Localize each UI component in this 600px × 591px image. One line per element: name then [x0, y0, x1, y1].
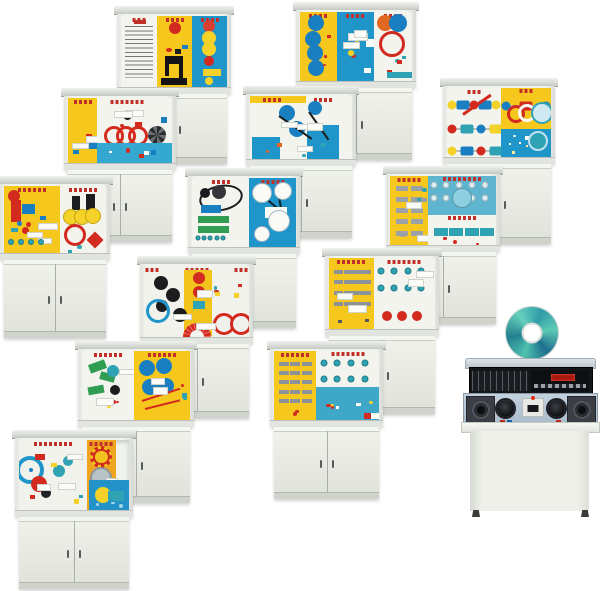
display-case — [188, 168, 300, 254]
door-handle — [332, 460, 334, 468]
backboard-panel — [121, 16, 157, 88]
red-caption-mark — [341, 352, 344, 356]
red-caption-mark — [408, 260, 411, 264]
red-caption-mark — [268, 98, 271, 102]
shaft-part — [477, 124, 486, 133]
display-case — [246, 86, 356, 166]
backboard-panel — [316, 387, 379, 421]
red-caption-marks — [74, 100, 92, 104]
scattered-part — [400, 234, 405, 237]
display-case — [386, 166, 500, 252]
display-backboard — [82, 351, 190, 421]
label-strip — [58, 483, 76, 490]
scattered-part — [116, 401, 120, 404]
backboard-panel — [501, 88, 551, 129]
card-slot — [528, 405, 539, 412]
speaker-cone-icon — [472, 401, 490, 419]
cabinet-base — [4, 331, 106, 338]
backboard-panel — [329, 258, 374, 330]
backboard-panel — [447, 88, 501, 158]
case-body — [0, 184, 110, 260]
scattered-part — [338, 320, 342, 323]
label-strip — [337, 293, 353, 300]
case-sill — [443, 157, 555, 164]
red-caption-mark — [64, 442, 67, 446]
red-caption-mark — [34, 442, 37, 446]
red-caption-marks — [94, 353, 122, 357]
red-caption-mark — [89, 100, 92, 104]
model-part-block — [193, 301, 205, 309]
model-part-disc — [212, 185, 226, 199]
door-handle — [141, 462, 143, 470]
model-part-disc — [254, 226, 270, 242]
parts-grid-item — [217, 226, 229, 233]
red-caption-mark — [121, 100, 124, 104]
scattered-part — [51, 463, 57, 467]
scattered-part — [509, 143, 511, 145]
scattered-part — [182, 45, 188, 49]
red-caption-mark — [398, 178, 401, 182]
model-part-block — [87, 231, 104, 248]
red-caption-marks — [34, 442, 72, 446]
belt-line — [145, 400, 180, 411]
scattered-part — [234, 293, 239, 298]
cabinet-base — [19, 582, 129, 589]
red-caption-mark — [448, 177, 451, 181]
red-caption-mark — [356, 352, 359, 356]
model-part-disc — [154, 276, 168, 290]
gear-wheel-hub — [93, 449, 109, 465]
red-caption-mark — [296, 353, 299, 357]
label-strip — [196, 323, 216, 331]
red-caption-mark — [151, 268, 154, 272]
gear-wheel-model — [90, 446, 112, 468]
red-caption-mark — [168, 353, 171, 357]
scattered-part — [526, 145, 528, 147]
parts-grid-item — [443, 181, 450, 188]
model-part-block — [22, 204, 35, 214]
label-strip — [153, 387, 167, 395]
parts-grid-item — [348, 375, 355, 382]
center-module — [522, 398, 544, 417]
red-caption-marks — [146, 268, 159, 272]
parts-grid-item — [396, 186, 408, 191]
scattered-part — [238, 284, 242, 287]
backboard-panel — [97, 143, 172, 164]
red-caption-mark — [329, 98, 332, 102]
red-caption-mark — [346, 14, 349, 18]
parts-grid-item — [353, 291, 362, 295]
label-strip — [173, 314, 192, 320]
model-part-disc — [274, 182, 292, 200]
backboard-panel — [501, 129, 551, 158]
parts-grid-item — [443, 194, 450, 201]
scattered-part — [139, 154, 143, 158]
model-part-disc — [382, 311, 392, 321]
red-caption-mark — [403, 178, 406, 182]
red-caption-mark — [23, 188, 26, 192]
display-case — [64, 88, 176, 170]
parts-grid-item — [362, 360, 369, 367]
label-strip — [151, 378, 165, 384]
parts-grid-item — [430, 181, 437, 188]
scattered-part — [519, 142, 521, 143]
red-caption-mark — [38, 188, 41, 192]
parts-grid-item — [344, 270, 353, 274]
door-handle — [361, 121, 363, 129]
model-part-disc — [389, 14, 407, 32]
red-caption-mark — [104, 353, 107, 357]
backboard-panel — [144, 266, 249, 338]
display-backboard — [68, 98, 172, 164]
display-cabinet-unit — [270, 341, 383, 499]
red-caption-mark — [39, 442, 42, 446]
model-part-disc — [166, 288, 180, 302]
red-caption-mark — [525, 89, 528, 93]
red-caption-mark — [54, 442, 57, 446]
case-body — [15, 438, 133, 517]
parts-grid-item — [391, 267, 398, 274]
door-handle — [79, 550, 81, 558]
label-strip — [343, 42, 360, 49]
red-caption-mark — [351, 352, 354, 356]
red-caption-mark — [119, 353, 122, 357]
scattered-part — [74, 499, 79, 504]
label-strip — [114, 111, 134, 118]
red-caption-mark — [336, 352, 339, 356]
backboard-panel — [192, 16, 227, 88]
parts-grid-item — [434, 228, 448, 236]
label-strip — [354, 30, 368, 38]
scattered-part — [109, 151, 112, 153]
red-caption-mark — [458, 216, 461, 220]
model-part-block — [371, 413, 379, 419]
case-body — [117, 14, 231, 94]
parts-grid-item — [302, 371, 312, 375]
sliding-door-seam — [74, 521, 75, 583]
display-backboard — [390, 176, 496, 246]
sliding-door-seam — [55, 264, 56, 332]
speaker-left — [466, 396, 495, 424]
sliding-door-seam — [136, 431, 137, 497]
case-sill — [78, 420, 194, 427]
cabinet-base — [274, 492, 379, 499]
model-part-disc — [230, 313, 249, 335]
parts-grid-item — [302, 380, 312, 384]
sliding-door-seam — [443, 256, 444, 318]
parts-grid-item — [404, 267, 411, 274]
scattered-part — [443, 237, 446, 239]
red-caption-mark — [244, 268, 247, 272]
display-cabinet-unit — [0, 176, 110, 338]
label-strip — [408, 279, 423, 287]
scattered-part — [166, 48, 172, 52]
door-handle — [113, 203, 115, 211]
label-strip — [281, 122, 299, 128]
backboard-panel — [316, 351, 379, 387]
red-caption-marks — [448, 216, 476, 220]
red-caption-marks — [443, 177, 481, 181]
label-strip — [307, 123, 323, 131]
case-body — [270, 349, 383, 427]
red-caption-marks — [212, 180, 230, 184]
model-part-disc — [107, 365, 119, 377]
red-caption-mark — [468, 90, 471, 94]
parts-grid-item — [377, 267, 384, 274]
label-strip — [406, 202, 421, 209]
model-part-disc — [139, 360, 155, 376]
label-strip — [297, 146, 313, 152]
scattered-part — [295, 410, 299, 413]
model-part-disc — [308, 60, 324, 76]
parts-grid-item — [411, 186, 423, 191]
parts-grid-item — [18, 239, 24, 245]
model-part-disc — [528, 131, 548, 151]
door-handle — [125, 203, 127, 211]
case-body — [64, 96, 176, 170]
red-caption-marks — [346, 14, 364, 18]
backboard-panel — [157, 16, 192, 88]
scattered-part — [356, 403, 361, 406]
scattered-part — [321, 143, 325, 147]
red-caption-mark — [116, 100, 119, 104]
parts-grid-item — [480, 228, 494, 236]
shaft-assembly-model — [449, 122, 499, 136]
shaft-part — [448, 100, 457, 109]
red-caption-mark — [530, 89, 533, 93]
display-cabinet-unit — [15, 430, 133, 589]
red-caption-mark — [342, 260, 345, 264]
model-part-disc — [268, 210, 290, 232]
backboard-panel — [374, 258, 435, 330]
red-caption-mark — [361, 14, 364, 18]
scattered-part — [29, 468, 33, 472]
door-handle — [504, 201, 506, 209]
red-caption-mark — [84, 188, 87, 192]
deck-display-window — [551, 374, 575, 381]
red-caption-mark — [173, 353, 176, 357]
model-part-disc — [531, 102, 551, 124]
case-body — [188, 176, 300, 254]
console-body — [470, 431, 589, 511]
red-caption-mark — [74, 100, 77, 104]
red-caption-mark — [362, 260, 365, 264]
case-sill — [0, 253, 110, 260]
display-case — [325, 248, 439, 336]
parts-grid-item — [290, 399, 300, 403]
scattered-part — [302, 154, 306, 157]
model-part-block — [252, 137, 280, 160]
parts-grid-item — [348, 360, 355, 367]
red-caption-mark — [388, 260, 391, 264]
label-strip — [197, 290, 213, 298]
backboard-panel — [249, 178, 296, 248]
scattered-part — [402, 56, 406, 59]
model-part-block — [201, 205, 221, 213]
case-sill — [270, 420, 383, 427]
model-part-block — [88, 385, 105, 396]
parts-grid-item — [391, 285, 398, 292]
red-caption-mark — [79, 188, 82, 192]
display-backboard — [144, 266, 249, 338]
scattered-part — [364, 68, 371, 73]
parts-grid-item — [334, 280, 343, 284]
red-caption-mark — [306, 353, 309, 357]
model-part-disc — [252, 183, 272, 203]
model-part-disc — [452, 188, 472, 208]
red-caption-mark — [281, 353, 284, 357]
speaker-right — [567, 396, 596, 424]
case-body — [325, 256, 439, 336]
red-caption-mark — [291, 353, 294, 357]
red-caption-marks — [468, 90, 481, 94]
red-caption-mark — [99, 353, 102, 357]
red-caption-marks — [69, 188, 97, 192]
scattered-part — [421, 198, 427, 202]
red-caption-mark — [463, 177, 466, 181]
red-caption-mark — [69, 188, 72, 192]
case-sill — [188, 247, 300, 254]
display-backboard — [250, 96, 352, 160]
case-body — [296, 10, 416, 88]
door-handle — [67, 550, 69, 558]
scattered-part — [331, 406, 334, 409]
display-case — [296, 2, 416, 88]
scattered-part — [88, 143, 96, 149]
scattered-part — [181, 384, 185, 388]
red-caption-marks — [281, 353, 309, 357]
label-strip — [38, 223, 58, 230]
model-part-disc — [8, 190, 20, 202]
cassette-deck — [531, 370, 589, 392]
backboard-panel — [60, 186, 106, 254]
backboard-panel — [192, 178, 249, 248]
parts-grid-item — [279, 380, 289, 384]
red-caption-mark — [478, 177, 481, 181]
display-backboard — [121, 16, 227, 88]
console-av-panel — [469, 367, 593, 395]
red-caption-mark — [28, 188, 31, 192]
red-caption-mark — [403, 260, 406, 264]
red-caption-mark — [146, 268, 149, 272]
red-caption-mark — [408, 178, 411, 182]
shaft-part — [460, 124, 473, 133]
scattered-part — [126, 148, 131, 153]
cd-center-hole — [524, 325, 541, 342]
model-part-ring — [64, 224, 86, 246]
scattered-part — [365, 319, 369, 322]
sewing-machine-head — [165, 56, 169, 76]
parts-grid-item — [353, 280, 362, 284]
label-strip — [67, 454, 83, 460]
backboard-panel — [374, 12, 412, 82]
model-part-disc — [200, 188, 210, 198]
door-handle — [48, 296, 50, 304]
red-caption-mark — [337, 260, 340, 264]
label-strip — [72, 143, 88, 149]
red-caption-mark — [43, 188, 46, 192]
model-part-disc — [204, 56, 214, 66]
red-caption-mark — [166, 18, 169, 22]
red-caption-mark — [351, 14, 354, 18]
rotary-knob-right — [548, 400, 565, 417]
red-caption-mark — [227, 180, 230, 184]
red-caption-mark — [324, 14, 327, 18]
parts-grid-item — [362, 375, 369, 382]
backboard-panel — [300, 12, 337, 82]
storage-cabinet — [4, 260, 106, 338]
model-part-block — [108, 491, 124, 501]
display-case — [117, 6, 231, 94]
red-caption-mark — [153, 353, 156, 357]
scattered-part — [513, 135, 516, 138]
red-caption-mark — [156, 268, 159, 272]
parts-grid-item — [290, 371, 300, 375]
display-backboard — [19, 440, 129, 511]
scattered-part — [453, 240, 457, 244]
model-part-disc — [397, 311, 407, 321]
label-strip — [348, 305, 367, 313]
red-caption-mark — [278, 98, 281, 102]
case-body — [140, 264, 253, 344]
parts-grid-item — [208, 236, 213, 241]
scattered-part — [54, 472, 57, 475]
parts-grid-item — [217, 216, 229, 223]
display-backboard — [274, 351, 379, 421]
red-caption-mark — [356, 14, 359, 18]
red-caption-mark — [234, 268, 237, 272]
scattered-part — [79, 495, 83, 498]
red-caption-mark — [473, 90, 476, 94]
fan-disc-model — [148, 126, 166, 144]
red-caption-mark — [59, 442, 62, 446]
red-caption-mark — [181, 18, 184, 22]
door-handle — [448, 285, 450, 293]
shaft-part — [491, 100, 500, 109]
backboard-panel — [19, 440, 87, 511]
red-caption-marks — [331, 352, 364, 356]
door-handle — [306, 199, 308, 207]
scattered-part — [73, 150, 79, 154]
parts-grid-item — [279, 362, 289, 366]
red-caption-mark — [216, 18, 219, 22]
model-part-ring — [379, 31, 405, 57]
parts-grid-item — [290, 362, 300, 366]
red-caption-mark — [413, 178, 416, 182]
red-caption-mark — [273, 98, 276, 102]
red-caption-mark — [324, 98, 327, 102]
red-caption-mark — [473, 216, 476, 220]
sliding-door-seam — [327, 431, 328, 493]
backboard-panel — [4, 186, 60, 254]
red-caption-mark — [217, 180, 220, 184]
parts-grid-item — [320, 360, 327, 367]
parts-grid-item — [465, 228, 479, 236]
scattered-part — [77, 245, 82, 250]
scattered-part — [327, 35, 331, 38]
parts-grid-item — [290, 380, 300, 384]
model-part-block — [387, 72, 412, 78]
red-caption-mark — [141, 100, 144, 104]
door-handle — [179, 126, 181, 134]
red-caption-mark — [301, 353, 304, 357]
console-foot — [472, 510, 480, 517]
red-caption-mark — [33, 188, 36, 192]
red-caption-marks — [337, 260, 365, 264]
red-caption-mark — [109, 353, 112, 357]
parts-grid-item — [220, 236, 225, 241]
model-part-disc — [307, 45, 323, 61]
